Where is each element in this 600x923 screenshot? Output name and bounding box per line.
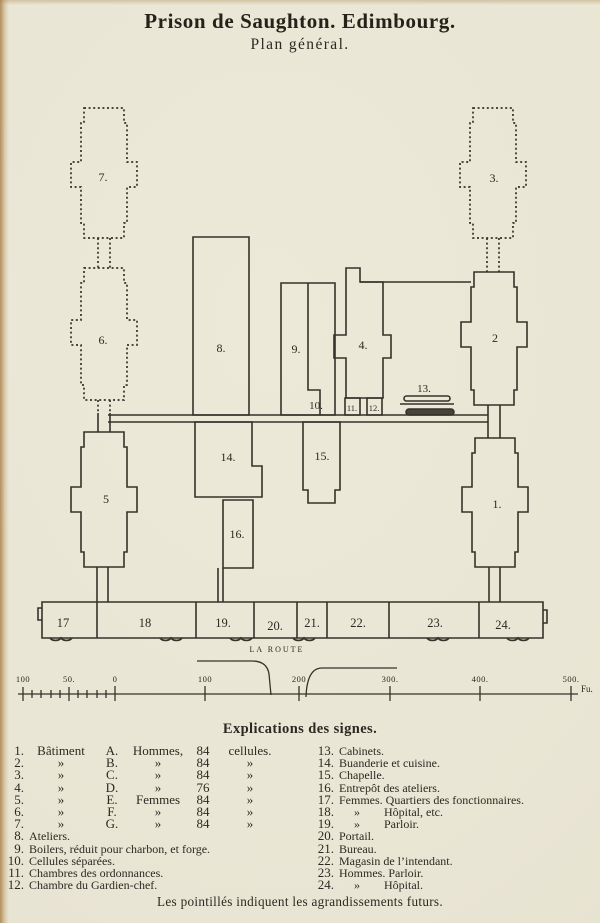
legend-column-left: 1. Bâtiment A. Hommes, 84 cellules. 2. »… <box>0 745 300 891</box>
existing-buildings-solid <box>38 237 547 640</box>
legend-item-12: 12. Chambre du Gardien-chef. <box>4 879 300 891</box>
scale-tick-label-0: 0 <box>113 674 118 684</box>
legend-item-24: 24. » Hôpital. <box>308 879 596 891</box>
legend-item-text: Chambre du Gardien-chef. <box>24 879 157 891</box>
building-8-outline <box>193 237 249 415</box>
scale-tick-label-200: 200 <box>292 674 306 684</box>
building-4-outline <box>334 268 391 398</box>
scale-tick-label-50: 50. <box>63 674 75 684</box>
legend-item-16: 16. Entrepôt des ateliers. <box>308 782 596 794</box>
legend-item-20: 20. Portail. <box>308 830 596 842</box>
legend-item-text: Bureau. <box>334 843 377 855</box>
building-14-label: 14. <box>221 450 236 464</box>
legend-item-text: » Hôpital. <box>334 879 423 891</box>
building-16-passage <box>218 568 223 602</box>
building-5-neck <box>97 567 108 602</box>
building-8-label: 8. <box>217 341 226 355</box>
legend-item-21: 21. Bureau. <box>308 843 596 855</box>
building-1-label: 1. <box>493 497 502 511</box>
legend-item-text: Portail. <box>334 830 374 842</box>
cabinets-13-lower <box>406 409 454 415</box>
future-buildings-dotted <box>71 108 526 413</box>
south-range-outline <box>42 602 543 638</box>
legend-item-text: Boilers, réduit pour charbon, et forge. <box>24 843 210 855</box>
legend: Explications des signes. 1. Bâtiment A. … <box>0 721 600 891</box>
footer-note: Les pointillés indiquent les agrandissem… <box>0 894 600 910</box>
room-19-label: 19. <box>215 616 231 630</box>
building-2-neck <box>488 405 500 438</box>
building-16-label: 16. <box>230 527 245 541</box>
building-6-label: 6. <box>99 333 108 347</box>
building-9-label: 9. <box>292 342 301 356</box>
legend-item-5: 5. » E. Femmes 84 » <box>4 794 300 806</box>
legend-item-2: 2. » B. » 84 » <box>4 757 300 769</box>
corridor-lines <box>108 415 488 422</box>
legend-item-ditto: » <box>126 818 190 830</box>
legend-item-count: 84 <box>190 818 216 830</box>
room-20-label: 20. <box>267 619 283 633</box>
building-5-label: 5 <box>103 492 109 506</box>
south-range-notches <box>38 608 547 623</box>
legend-item-8: 8. Ateliers. <box>4 830 300 842</box>
road-label: LA ROUTE <box>250 645 305 654</box>
scale-tick-label-300: 300. <box>382 674 399 684</box>
south-range-dividers <box>97 602 479 638</box>
legend-item-letter: G. <box>98 818 126 830</box>
legend-item-1: 1. Bâtiment A. Hommes, 84 cellules. <box>4 745 300 757</box>
legend-item-6: 6. » F. » 84 » <box>4 806 300 818</box>
building-1-neck <box>489 567 500 602</box>
legend-column-right: 13. Cabinets. 14. Buanderie et cuisine. … <box>300 745 596 891</box>
room-22-label: 22. <box>350 616 366 630</box>
legend-heading: Explications des signes. <box>0 721 600 738</box>
cabinets-13-label: 13. <box>417 383 431 395</box>
scale-tick-label-100: 100 <box>198 674 212 684</box>
scale-tick-label-400: 400. <box>472 674 489 684</box>
legend-columns: 1. Bâtiment A. Hommes, 84 cellules. 2. »… <box>0 745 600 891</box>
building-6-neck <box>98 400 110 413</box>
legend-item-text: Ateliers. <box>24 830 70 842</box>
legend-item-9: 9. Boilers, réduit pour charbon, et forg… <box>4 843 300 855</box>
building-3-neck <box>487 238 499 272</box>
prison-plan-drawing: 7. 6. 5 3. 2 1. 8. 9. 4. 10. 11. 12. 13.… <box>0 0 600 710</box>
building-7-neck <box>98 238 110 268</box>
building-7-label: 7. <box>99 170 108 184</box>
page-edge-shadow <box>0 0 9 923</box>
room-18-label: 18 <box>139 616 152 630</box>
building-2-label: 2 <box>492 331 498 345</box>
room-10-divider <box>308 283 320 415</box>
legend-item-number: 24. <box>308 879 334 891</box>
scale-tick-label-500: 500. <box>563 674 580 684</box>
building-3-label: 3. <box>490 171 499 185</box>
cabinets-13-upper <box>404 396 450 401</box>
page-top-shadow <box>0 0 600 5</box>
building-15-label: 15. <box>315 449 330 463</box>
scale-tick-label-100l: 100 <box>16 674 30 684</box>
room-23-label: 23. <box>427 616 443 630</box>
scale-unit-label: Fu. <box>581 684 593 694</box>
room-17-label: 17 <box>57 616 70 630</box>
legend-item-ditto: » <box>216 818 284 830</box>
room-11-label: 11. <box>347 403 357 413</box>
legend-item-text: Chapelle. <box>334 769 385 781</box>
legend-item-15: 15. Chapelle. <box>308 769 596 781</box>
room-21-label: 21. <box>304 616 320 630</box>
legend-item-3: 3. » C. » 84 » <box>4 769 300 781</box>
room-24-label: 24. <box>495 618 511 632</box>
building-4-label: 4. <box>359 338 368 352</box>
room-10-label: 10. <box>309 400 323 412</box>
room-12-label: 12. <box>369 403 380 413</box>
legend-item-text: Entrepôt des ateliers. <box>334 782 440 794</box>
